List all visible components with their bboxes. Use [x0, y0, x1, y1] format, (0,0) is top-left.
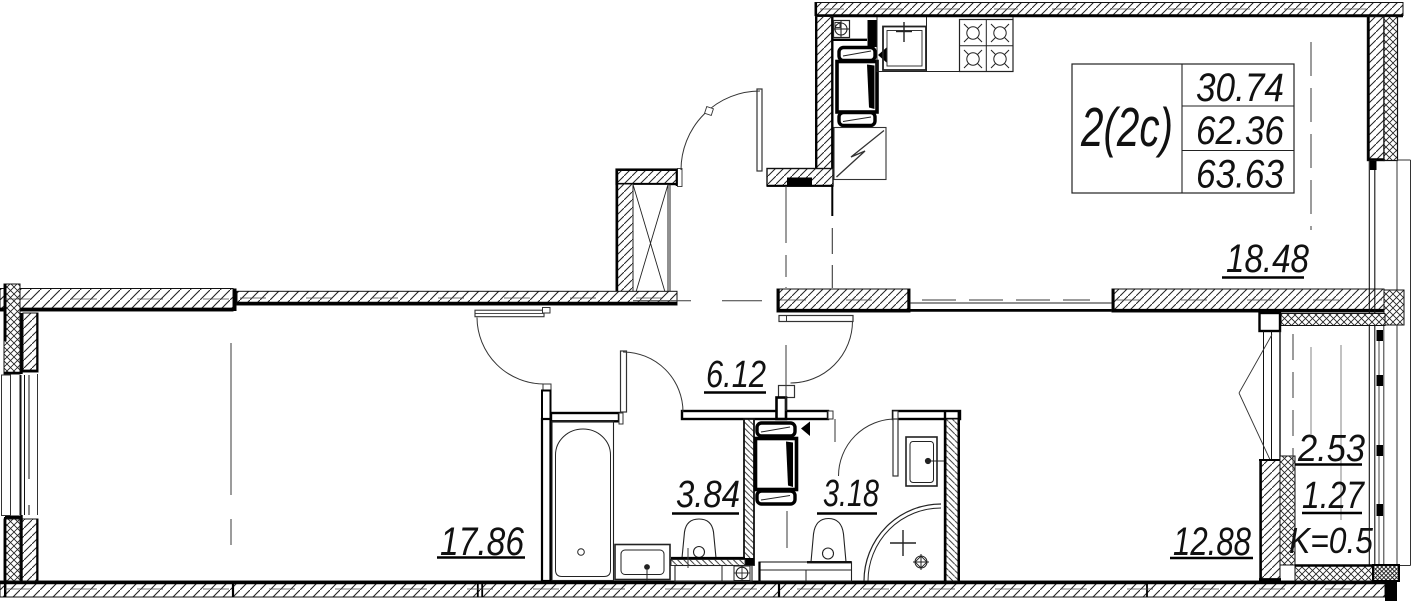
svg-text:63.63: 63.63 — [1196, 153, 1284, 197]
svg-text:3.18: 3.18 — [823, 473, 879, 515]
svg-text:62.36: 62.36 — [1196, 109, 1285, 153]
svg-text:3.84: 3.84 — [676, 474, 740, 516]
svg-text:18.48: 18.48 — [1226, 237, 1310, 281]
svg-text:2(2c): 2(2c) — [1080, 96, 1173, 158]
svg-text:6.12: 6.12 — [706, 354, 766, 396]
svg-text:K=0.5: K=0.5 — [1289, 520, 1374, 561]
svg-text:1.27: 1.27 — [1302, 475, 1366, 517]
svg-text:30.74: 30.74 — [1196, 66, 1284, 110]
